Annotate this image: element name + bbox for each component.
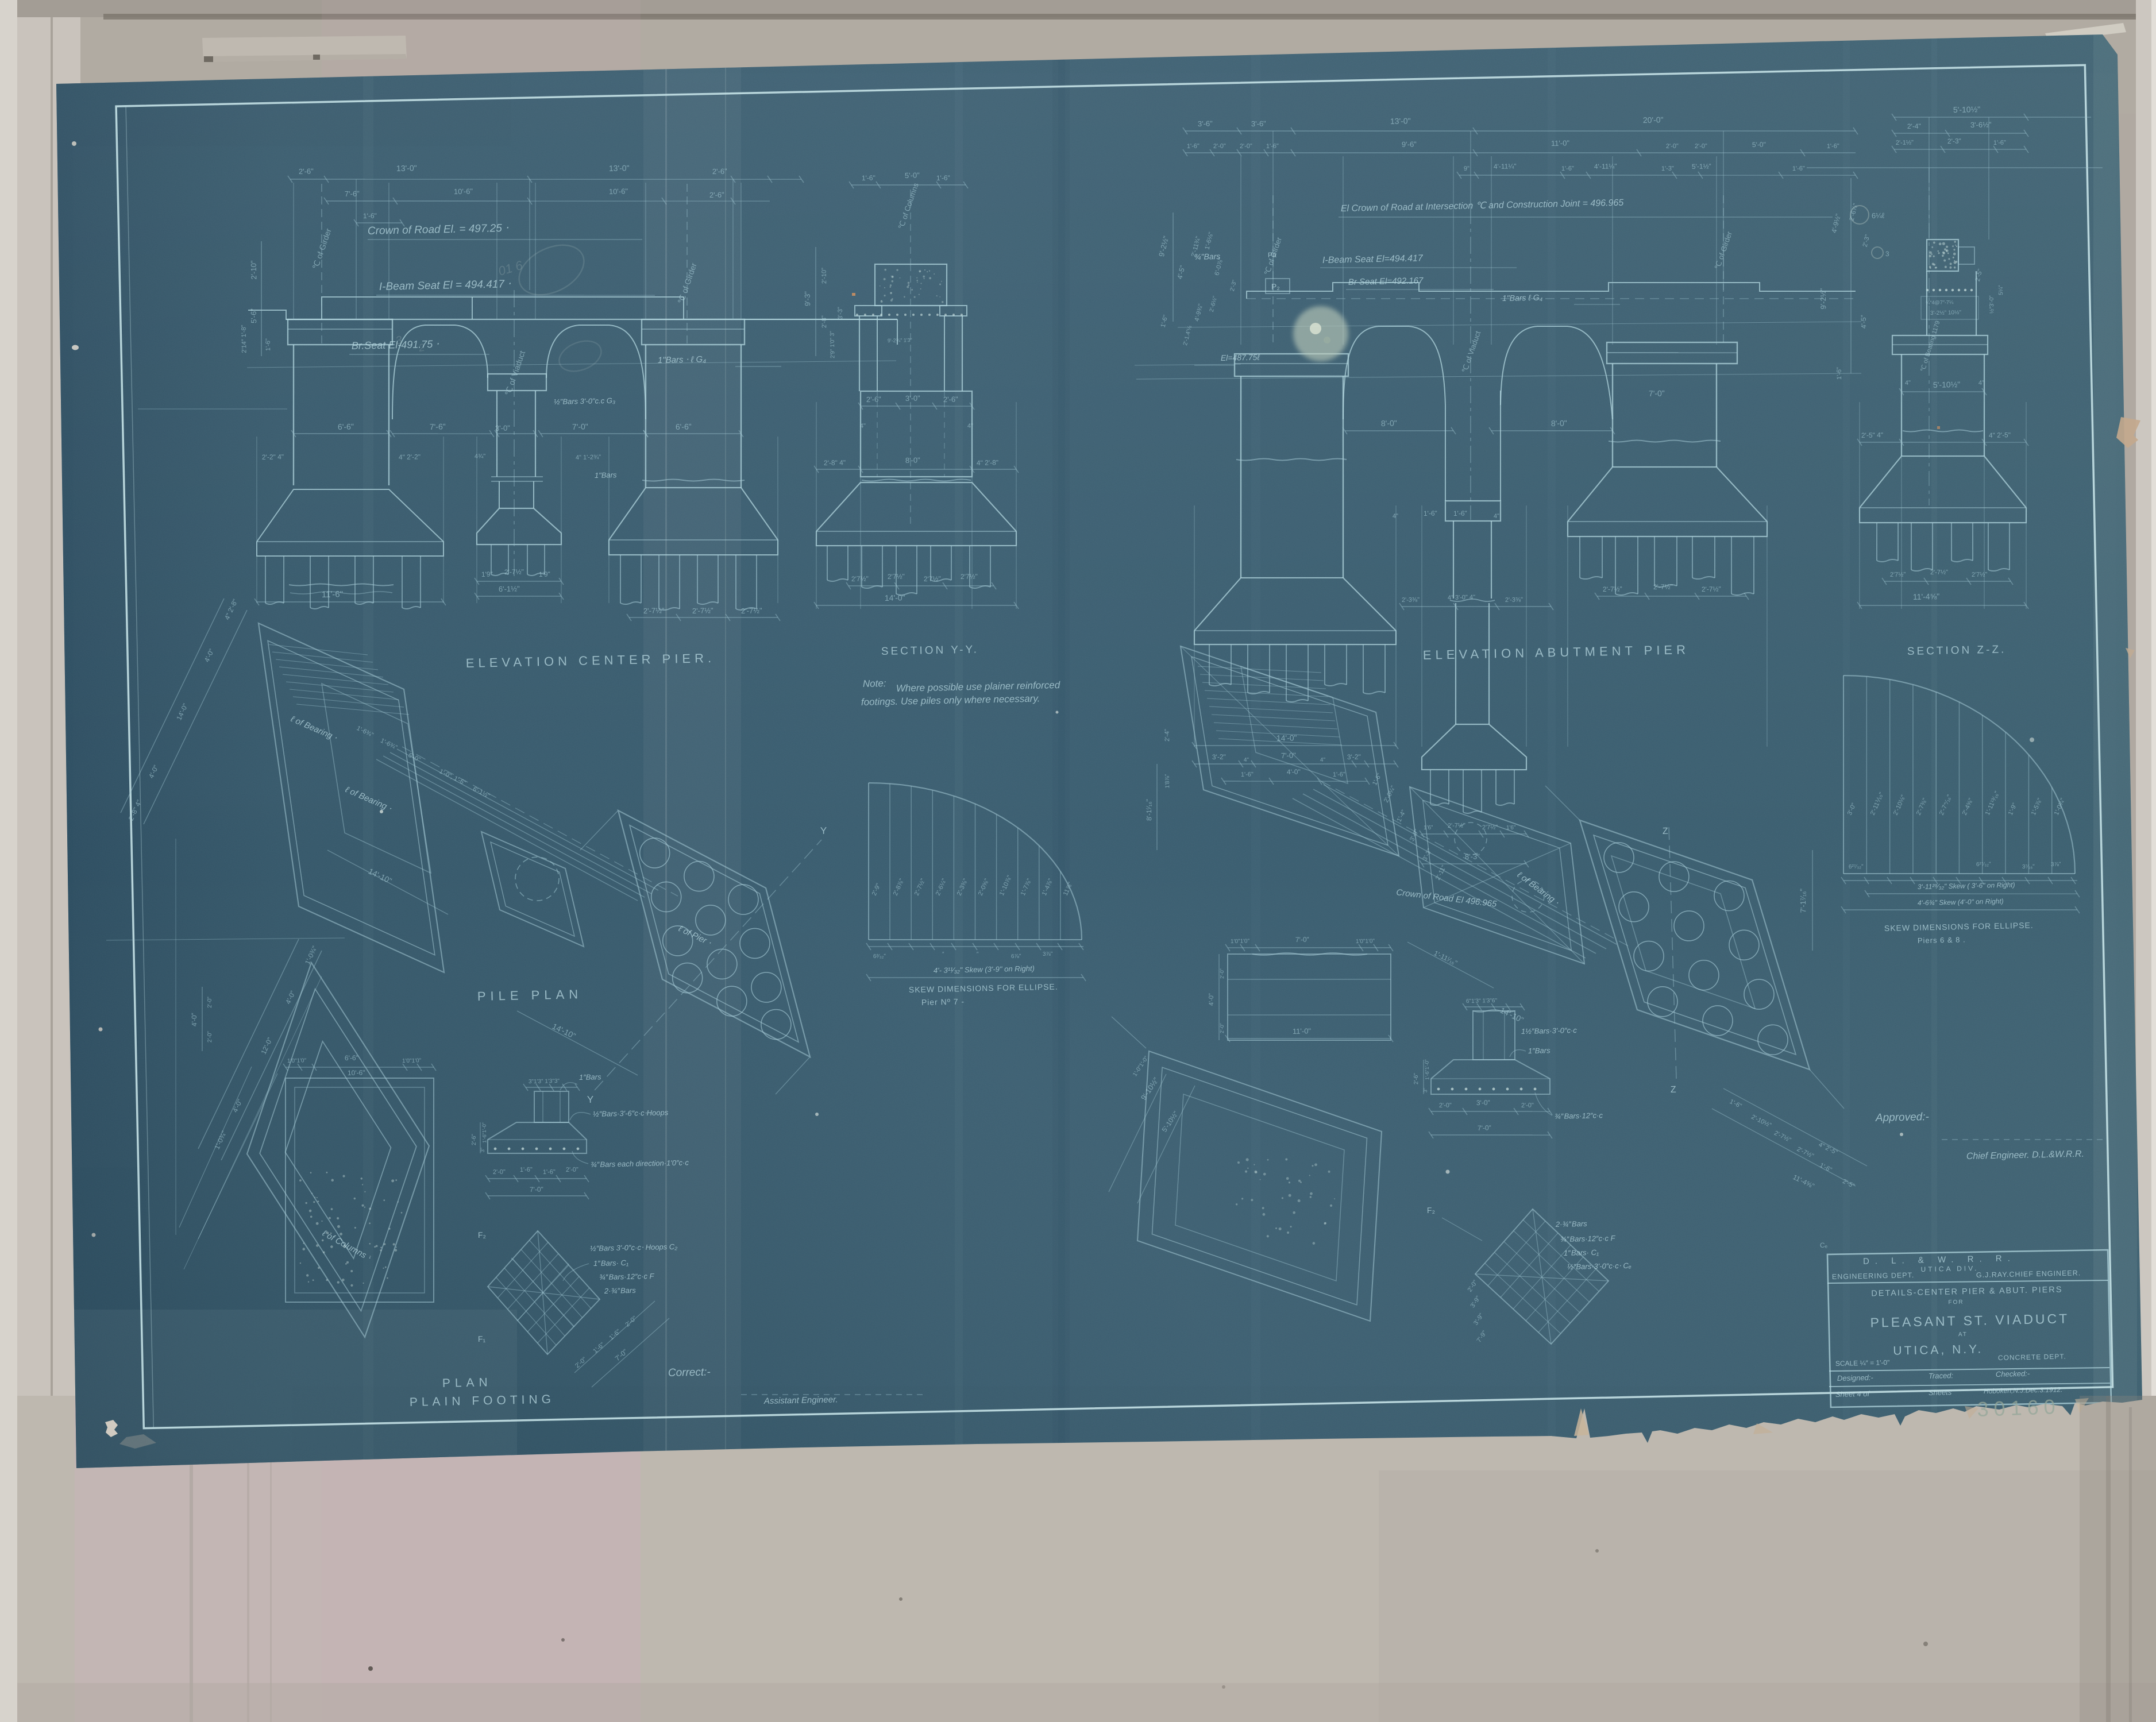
svg-text:1'-6": 1'-6" [862,174,875,182]
svg-text:4" 3'-0" 4": 4" 3'-0" 4" [1448,594,1475,601]
svg-text:6'-6": 6'-6" [345,1054,358,1062]
svg-text:8'-0": 8'-0" [905,455,921,465]
svg-text:Br Seat El=492.167: Br Seat El=492.167 [1348,276,1424,287]
svg-text:2'-0": 2'-0" [1213,143,1226,150]
svg-text:2'-0": 2'-0" [566,1167,578,1173]
svg-text:13'-0": 13'-0" [1390,116,1411,126]
svg-text:3: 3 [1885,250,1889,258]
svg-text:¾″ Bars·12″c·c F: ¾″ Bars·12″c·c F [599,1272,655,1281]
svg-text:Y: Y [587,1094,594,1105]
svg-text:1'8⅞": 1'8⅞" [1164,774,1171,789]
svg-text:2·¾″ Bars: 2·¾″ Bars [604,1286,637,1295]
svg-text:Piers 6 & 8 .: Piers 6 & 8 . [1918,935,1966,945]
svg-text:6​²⁷⁄₃₂": 6​²⁷⁄₃₂" [1849,863,1864,870]
svg-text:Y: Y [820,825,827,836]
svg-text:1'6": 1'6" [1424,825,1433,831]
svg-text:1'0"1'0": 1'0"1'0" [287,1057,307,1064]
svg-text:1″Bars: 1″Bars [1528,1046,1551,1055]
svg-text:2'-7½": 2'-7½" [1653,582,1673,591]
svg-text:6"1'3" 1'3"6": 6"1'3" 1'3"6" [1466,998,1498,1005]
svg-text:5'-6": 5'-6" [249,308,259,324]
svg-text:¾″ Bars·12″c·c: ¾″ Bars·12″c·c [1555,1111,1603,1121]
svg-text:2'-0": 2'-0" [207,997,213,1009]
svg-text:3'-0": 3'-0" [905,393,921,403]
svg-text:7'-0": 7'-0" [1649,388,1665,398]
svg-text:1'-3": 1'-3" [1661,165,1674,172]
svg-text:½″Bars·3'-0″c·c⋅ Cₑ: ½″Bars·3'-0″c·c⋅ Cₑ [1567,1261,1632,1271]
svg-text:4": 4" [1393,513,1398,520]
svg-text:SECTION Y-Y.: SECTION Y-Y. [881,643,979,658]
svg-text:½″Bars·3'-6″c·c⋅Hoops: ½″Bars·3'-6″c·c⋅Hoops [593,1108,669,1118]
svg-text:FOR: FOR [1948,1299,1964,1306]
svg-text:7'-0": 7'-0" [1295,936,1309,944]
svg-text:½"Bars 3'-0"c.c G₃: ½"Bars 3'-0"c.c G₃ [554,396,615,406]
svg-text:1″Bars: 1″Bars [579,1072,601,1082]
svg-text:3": 3" [480,1148,485,1152]
svg-text:6​²⁷⁄₃₂": 6​²⁷⁄₃₂" [1976,861,1991,868]
svg-text:PLAN: PLAN [442,1376,492,1390]
svg-text:Cₑ: Cₑ [1820,1241,1828,1249]
svg-text:Checked:-: Checked:- [1996,1369,2030,1379]
svg-text:SCALE ¼″ = 1'-0": SCALE ¼″ = 1'-0" [1835,1358,1890,1368]
svg-text:2'-6": 2'-6" [471,1134,477,1146]
svg-text:7'-1​⁷⁄₁₆": 7'-1​⁷⁄₁₆" [1799,888,1808,913]
svg-text:El=487.75ℓ: El=487.75ℓ [1221,353,1260,362]
svg-text:9'-2½": 9'-2½" [1819,288,1828,309]
svg-text:11'-0": 11'-0" [1293,1026,1312,1036]
svg-text:Sheet 4 of: Sheet 4 of [1835,1389,1870,1399]
svg-text:2'-7½": 2'-7½" [643,606,665,615]
svg-text:2'-3⅜": 2'-3⅜" [1505,596,1523,604]
svg-text:5'-1½": 5'-1½" [1692,162,1711,171]
svg-text:½″3'-0": ½″3'-0" [1989,295,1996,314]
svg-text:6​²⁄₃₂": 6​²⁄₃₂" [873,953,886,960]
svg-text:2'-0": 2'-0" [1240,142,1252,149]
svg-text:4": 4" [1320,757,1326,763]
svg-text:5¼": 5¼" [1997,285,2004,295]
svg-text:¾″ Bars·12″c·c F: ¾″ Bars·12″c·c F [1560,1234,1616,1244]
svg-text:2'-8": 2'-8" [821,315,828,328]
svg-text:6​⅞": 6​⅞" [1011,953,1021,960]
svg-text:1'9": 1'9" [481,570,493,578]
svg-text:4": 4" [967,423,973,430]
svg-text:6'-6": 6'-6" [338,422,354,431]
svg-text:3'-2½" 10½": 3'-2½" 10½" [1930,310,1962,316]
svg-text:2'7½": 2'7½" [924,574,941,583]
svg-text:9'-3": 9'-3" [803,291,812,307]
svg-text:9'-6": 9'-6" [1402,140,1417,149]
svg-text:1'-6": 1'-6" [1266,143,1279,150]
svg-text:2'-0": 2'-0" [1439,1102,1452,1109]
svg-text:8'-0": 8'-0" [1551,418,1567,428]
svg-text:P₂: P₂ [1271,282,1280,291]
svg-text:2'14″ 1'-8": 2'14″ 1'-8" [240,325,248,353]
svg-text:1'-6": 1'-6" [543,1168,556,1175]
svg-text:3"1'3" 1'3"3": 3"1'3" 1'3"3" [529,1078,560,1085]
svg-text:9": 9" [1464,165,1470,172]
svg-text:4" 2'-8": 4" 2'-8" [977,458,998,467]
svg-text:Traced:: Traced: [1929,1371,1954,1380]
svg-text:2'-6": 2'-6" [712,167,728,176]
svg-text:3'-6": 3'-6" [1198,119,1213,128]
svg-text:Approved:-: Approved:- [1875,1111,1929,1124]
svg-text:1"Bars: 1"Bars [595,470,617,480]
svg-text:6¼ℓ: 6¼ℓ [1872,211,1885,220]
svg-text:9'-2¾" 1'3": 9'-2¾" 1'3" [888,337,912,343]
svg-text:5'-0": 5'-0" [1752,140,1766,148]
svg-text:1'-6": 1'-6" [1424,509,1437,517]
svg-text:2'-2" 4": 2'-2" 4" [262,453,284,461]
svg-text:10'-6": 10'-6" [348,1068,365,1077]
svg-text:3'-6": 3'-6" [1251,119,1267,128]
svg-text:10'-6": 10'-6" [454,187,473,196]
svg-text:1"Bars ⋅ ℓ G₄: 1"Bars ⋅ ℓ G₄ [658,354,707,365]
svg-text:2'-4": 2'-4" [1164,729,1171,742]
svg-text:Z: Z [1671,1085,1676,1095]
svg-text:4" 2'-2": 4" 2'-2" [399,453,421,461]
svg-text:2'-7½": 2'-7½" [1702,585,1721,593]
svg-text:14'-0": 14'-0" [885,593,905,603]
svg-text:Assistant Engineer.: Assistant Engineer. [763,1395,838,1406]
svg-text:5'-10½": 5'-10½" [1953,105,1981,114]
svg-text:2'-0": 2'-0" [207,1031,213,1043]
svg-text:7'-0": 7'-0" [572,422,588,431]
svg-text:1'-6": 1'-6" [265,338,272,351]
svg-text:20'-0": 20'-0" [1643,115,1664,125]
svg-text:2'-0": 2'-0" [1521,1102,1534,1109]
svg-text:7'-6": 7'-6" [430,422,446,431]
svg-text:8'-0": 8'-0" [1381,418,1397,428]
svg-text:UTICA DIV.: UTICA DIV. [1920,1264,1978,1273]
svg-text:3​⅞": 3​⅞" [1043,951,1053,957]
svg-text:F₁: F₁ [478,1334,486,1343]
svg-text:2'-7½": 2'-7½" [1603,585,1622,593]
svg-text:1'9": 1'9" [539,570,550,578]
svg-text:1'-6"1'-0": 1'-6"1'-0" [1424,1059,1430,1080]
svg-text:1½″Bars·3'-0″c·c: 1½″Bars·3'-0″c·c [1521,1026,1578,1036]
svg-text:SECTION Z-Z.: SECTION Z-Z. [1907,643,2007,658]
svg-text:4¾": 4¾" [475,453,486,460]
svg-text:Pa: Pa [1268,251,1276,259]
svg-text:2'7½": 2'7½" [1972,571,1988,578]
svg-text:2'-0": 2'-0" [493,1169,506,1176]
svg-text:2'-5" 4": 2'-5" 4" [1861,431,1883,439]
svg-text:1'-6": 1'-6" [1792,165,1805,172]
svg-text:1'-6": 1'-6" [363,212,377,220]
svg-text:2'-6": 2'-6" [299,167,314,176]
svg-text:4" 1'-2¾": 4" 1'-2¾" [576,454,601,461]
svg-text:1'-6": 1'-6" [1827,142,1839,149]
svg-text:2'-0": 2'-0" [1666,143,1679,150]
svg-text:3'-2": 3'-2" [1347,752,1361,760]
svg-text:1'-6": 1'-6" [1836,367,1843,380]
svg-text:3​⅞": 3​⅞" [2051,862,2061,868]
svg-text:6'-6": 6'-6" [676,422,692,431]
svg-text:1'-6": 1'-6" [520,1167,533,1173]
svg-text:4'-0": 4'-0" [190,1013,198,1026]
svg-text:F₂: F₂ [1427,1206,1435,1215]
svg-text:5'-10½": 5'-10½" [1933,380,1961,389]
svg-text:2'-6": 2'-6" [866,395,882,404]
svg-text:CONCRETE DEPT.: CONCRETE DEPT. [1998,1352,2066,1361]
svg-text:1'0"1'0": 1'0"1'0" [402,1057,422,1064]
svg-text:AT: AT [1958,1331,1968,1338]
svg-text:1'-6": 1'-6" [936,174,950,182]
svg-text:Z: Z [1663,827,1668,836]
svg-text:1'-6": 1'-6" [1187,143,1200,150]
svg-text:1'-6": 1'-6" [1333,771,1345,778]
svg-text:4'-11¼": 4'-11¼" [1494,162,1517,171]
svg-text:2'-10": 2'-10" [821,268,828,284]
svg-text:3'-0": 3'-0" [1476,1098,1490,1106]
svg-text:1″ Bars· C₁: 1″ Bars· C₁ [1564,1248,1599,1257]
svg-text:2'-8" 4": 2'-8" 4" [824,458,846,467]
svg-text:2'-0": 2'-0" [1219,968,1225,979]
svg-text:2'7½": 2'7½" [1890,571,1906,578]
svg-text:4'-0": 4'-0" [1208,993,1215,1006]
svg-text:3": 3" [1422,1088,1428,1092]
svg-text:2'-7½": 2'-7½" [741,606,762,615]
svg-text:2'7½": 2'7½" [851,574,869,583]
svg-text:2'7½": 2'7½" [888,572,905,581]
svg-text:8'-1​⁽⁄₁₆": 8'-1​⁽⁄₁₆" [1145,799,1154,821]
svg-text:2'-6": 2'-6" [709,190,725,199]
svg-text:PILE PLAN: PILE PLAN [477,987,583,1003]
svg-text:Sheets: Sheets [1929,1388,1952,1397]
svg-text:1'-6": 1'-6" [1993,140,2006,146]
svg-text:4" 2'-5": 4" 2'-5" [1989,431,2011,439]
svg-text:1'0"1'0": 1'0"1'0" [1356,938,1375,945]
svg-text:30160: 30160 [1977,1395,2061,1421]
svg-text:4": 4" [1905,380,1911,387]
svg-text:2·¾″ Bars: 2·¾″ Bars [1555,1219,1588,1229]
svg-text:Hoboken,N.J.Dec.3.1912.: Hoboken,N.J.Dec.3.1912. [1984,1385,2063,1395]
svg-text:7'-6": 7'-6" [345,189,360,198]
svg-text:3'-3": 3'-3" [837,307,844,319]
svg-text:Designed:-: Designed:- [1837,1373,1874,1383]
svg-text:1″ Bars· C₁: 1″ Bars· C₁ [593,1258,628,1268]
svg-text:11'-6": 11'-6" [322,589,343,600]
svg-text:2'-3⅜": 2'-3⅜" [1402,596,1420,604]
svg-text:¾"Bars: ¾"Bars [1194,252,1221,261]
svg-text:1'-6"1'-0": 1'-6"1'-0" [481,1122,488,1143]
svg-text:10'-6": 10'-6" [609,187,628,196]
svg-text:4": 4" [1244,757,1249,763]
svg-text:7'-0": 7'-0" [530,1186,543,1194]
svg-text:1"Bars ℓ G₄: 1"Bars ℓ G₄ [1502,293,1543,303]
svg-text:5'-0": 5'-0" [905,171,920,180]
svg-text:2'-7½": 2'-7½" [1930,569,1948,576]
svg-text:7'-0": 7'-0" [1478,1123,1491,1132]
svg-text:4": 4" [1978,380,1984,387]
svg-text:3​⁷⁄₁₆": 3​⁷⁄₁₆" [2022,864,2035,870]
svg-text:2'-7½": 2'-7½" [692,606,713,615]
svg-text:4": 4" [1494,513,1499,520]
svg-text:½″Bars 3'-0″c·c⋅ Hoops C₂: ½″Bars 3'-0″c·c⋅ Hoops C₂ [590,1242,678,1253]
svg-text:2'-6": 2'-6" [943,395,959,404]
svg-text:1'-6": 1'-6" [1561,165,1574,172]
svg-text:1'0"1'0": 1'0"1'0" [1231,938,1250,945]
svg-text:13'-0": 13'-0" [609,163,630,173]
svg-text:4'-11¼": 4'-11¼" [1594,162,1617,171]
svg-text:Note:: Note: [863,678,886,689]
svg-text:2'-3": 2'-3" [1947,137,1961,145]
svg-text:2'-10": 2'-10" [249,260,259,280]
svg-text:2'7½": 2'7½" [961,572,978,581]
svg-text:4'-0": 4'-0" [1287,767,1301,775]
svg-text:UTICA, N.Y.: UTICA, N.Y. [1893,1342,1983,1357]
svg-text:6'-1½": 6'-1½" [499,584,520,593]
svg-text:1'-6": 1'-6" [1241,771,1254,778]
svg-text:¾″4@7″-7¼: ¾″4@7″-7¼ [1926,299,1954,306]
svg-text:F₂: F₂ [478,1230,486,1240]
svg-text:Correct:-: Correct:- [668,1366,711,1379]
svg-text:3'-0": 3'-0" [495,423,511,433]
svg-text:2'-0": 2'-0" [1695,143,1707,150]
svg-text:3'-2": 3'-2" [1212,752,1226,760]
svg-text:2'9" 1'0" 3": 2'9" 1'0" 3" [830,331,836,359]
svg-text:2'-6": 2'-6" [1413,1073,1420,1085]
svg-text:13'-0": 13'-0" [396,163,417,173]
svg-text:2'-4": 2'-4" [1907,122,1921,130]
svg-text:2'-0": 2'-0" [1219,1023,1225,1033]
svg-text:1'-6": 1'-6" [1453,509,1467,518]
svg-text:11'-4⅝": 11'-4⅝" [1913,592,1940,601]
svg-text:Pier Nº 7 -: Pier Nº 7 - [921,997,965,1007]
svg-text:11'-0": 11'-0" [1551,138,1570,148]
svg-text:2'-1½": 2'-1½" [1896,139,1914,146]
